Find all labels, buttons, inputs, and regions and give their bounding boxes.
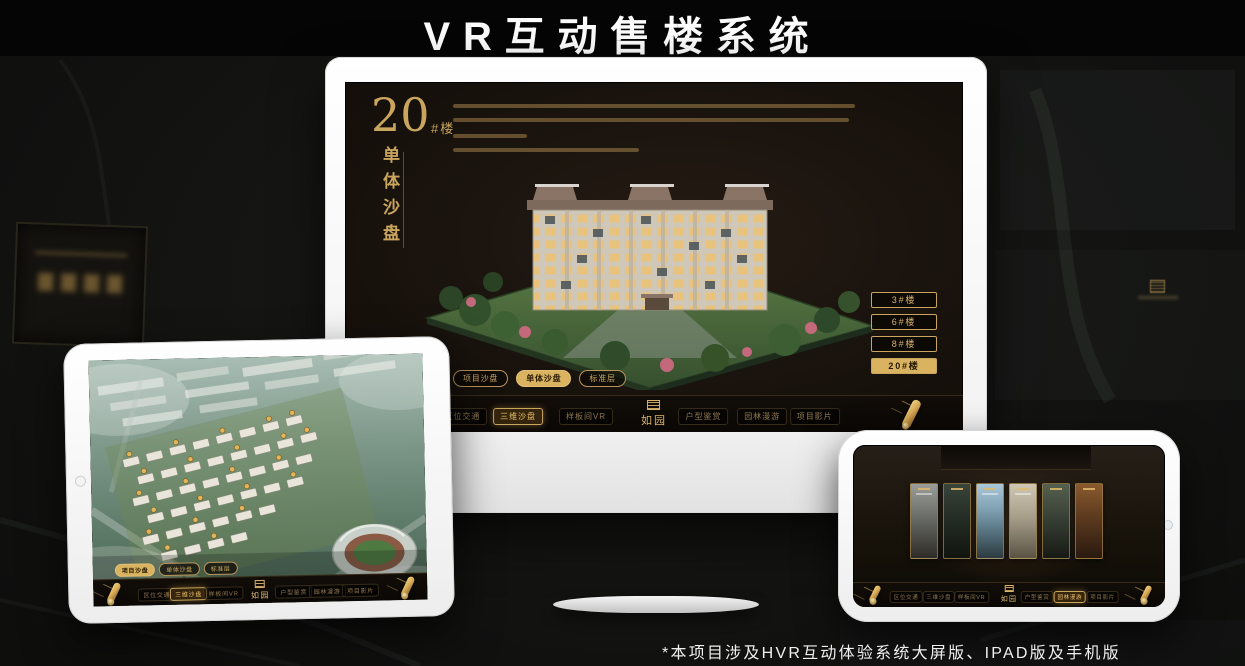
project-logo: 如园 [251, 580, 270, 601]
project-logo: 如园 [1001, 585, 1018, 604]
tablet-screen: 项目沙盘 单体沙盘 标准层 区位交通 三维沙盘 样板间VR 如园 户型鉴赏 园林… [88, 354, 427, 607]
background-logo-chip [1150, 280, 1165, 293]
section-title-vertical: 单体沙盘 [377, 146, 402, 250]
nav-item-project-film[interactable]: 项目影片 [790, 408, 840, 425]
monitor-base [553, 596, 759, 613]
sandbox-subtab-group: 项目沙盘 单体沙盘 标准层 [453, 370, 626, 387]
description-line [453, 148, 639, 152]
subtab-single-sandbox[interactable]: 单体沙盘 [516, 370, 571, 387]
nav-item-showroom-vr[interactable]: 样板间VR [204, 586, 244, 600]
building-render-canvas[interactable] [415, 160, 885, 390]
gallery-panel-2[interactable] [943, 483, 971, 559]
scroll-handle-icon[interactable] [106, 582, 122, 605]
floor-button-3[interactable]: 3#楼 [871, 292, 937, 308]
nav-item-location-traffic[interactable]: 区位交通 [890, 591, 923, 603]
nav-item-garden-roam[interactable]: 园林漫游 [737, 408, 787, 425]
background-logo-text [1138, 296, 1178, 299]
scroll-handle-icon[interactable] [901, 399, 922, 430]
gallery-panel-6[interactable] [1075, 483, 1103, 559]
description-line [453, 118, 849, 122]
phone-device: 区位交通 三维沙盘 样板间VR 如园 户型鉴赏 园林漫游 项目影片 [838, 430, 1180, 622]
subtab-project-sandbox[interactable]: 项目沙盘 [115, 563, 156, 577]
subtab-project-sandbox[interactable]: 项目沙盘 [453, 370, 508, 387]
subtab-standard-floor[interactable]: 标准层 [579, 370, 625, 387]
page: { "header": { "title": "VR互动售楼系统" }, "fo… [0, 0, 1245, 666]
gallery-panel-5[interactable] [1042, 483, 1070, 559]
scroll-handle-icon[interactable] [868, 585, 881, 604]
background-plaque [12, 222, 148, 349]
nav-item-3d-sandbox[interactable]: 三维沙盘 [922, 591, 955, 603]
scroll-handle-icon[interactable] [1140, 585, 1153, 604]
nav-item-garden-roam[interactable]: 园林漫游 [1054, 591, 1087, 603]
building-number: 20 [371, 88, 430, 142]
subtab-standard-floor[interactable]: 标准层 [204, 561, 238, 575]
gallery-panel-4[interactable] [1009, 483, 1037, 559]
headline-divider [403, 152, 404, 248]
nav-item-project-film[interactable]: 项目影片 [342, 584, 379, 598]
nav-item-showroom-vr[interactable]: 样板间VR [559, 408, 613, 425]
page-title: VR互动售楼系统 [0, 4, 1245, 62]
phone-screen: 区位交通 三维沙盘 样板间VR 如园 户型鉴赏 园林漫游 项目影片 [853, 445, 1165, 607]
nav-item-unit-appreciation[interactable]: 户型鉴赏 [275, 585, 312, 599]
nav-item-unit-appreciation[interactable]: 户型鉴赏 [1021, 591, 1054, 603]
description-line [453, 134, 527, 138]
footer-note: *本项目涉及HVR互动体验系统大屏版、IPAD版及手机版 [662, 639, 1245, 663]
project-logo: 如园 [641, 400, 667, 428]
floor-button-20[interactable]: 20#楼 [871, 358, 937, 374]
gallery-panel-3[interactable] [976, 483, 1004, 559]
floor-button-6[interactable]: 6#楼 [871, 314, 937, 330]
description-line [453, 104, 855, 108]
floor-button-8[interactable]: 8#楼 [871, 336, 937, 352]
phone-navbar: 区位交通 三维沙盘 样板间VR 如园 户型鉴赏 园林漫游 项目影片 [853, 582, 1165, 607]
building-number-unit: #楼 [431, 118, 455, 137]
scroll-handle-icon[interactable] [400, 575, 416, 598]
nav-item-3d-sandbox[interactable]: 三维沙盘 [170, 587, 207, 601]
nav-item-unit-appreciation[interactable]: 户型鉴赏 [679, 408, 729, 425]
floor-button-group: 3#楼 6#楼 8#楼 20#楼 [871, 292, 937, 374]
gallery-panel-1[interactable] [910, 483, 938, 559]
header-bar: VR互动售楼系统 [0, 0, 1245, 56]
tablet-device: 项目沙盘 单体沙盘 标准层 区位交通 三维沙盘 样板间VR 如园 户型鉴赏 园林… [63, 336, 455, 624]
nav-item-showroom-vr[interactable]: 样板间VR [954, 591, 989, 603]
tablet-subtab-group: 项目沙盘 单体沙盘 标准层 [115, 561, 238, 577]
nav-item-project-film[interactable]: 项目影片 [1086, 591, 1119, 603]
nav-item-garden-roam[interactable]: 园林漫游 [309, 584, 346, 598]
nav-item-3d-sandbox[interactable]: 三维沙盘 [493, 408, 543, 425]
subtab-single-sandbox[interactable]: 单体沙盘 [159, 562, 200, 576]
